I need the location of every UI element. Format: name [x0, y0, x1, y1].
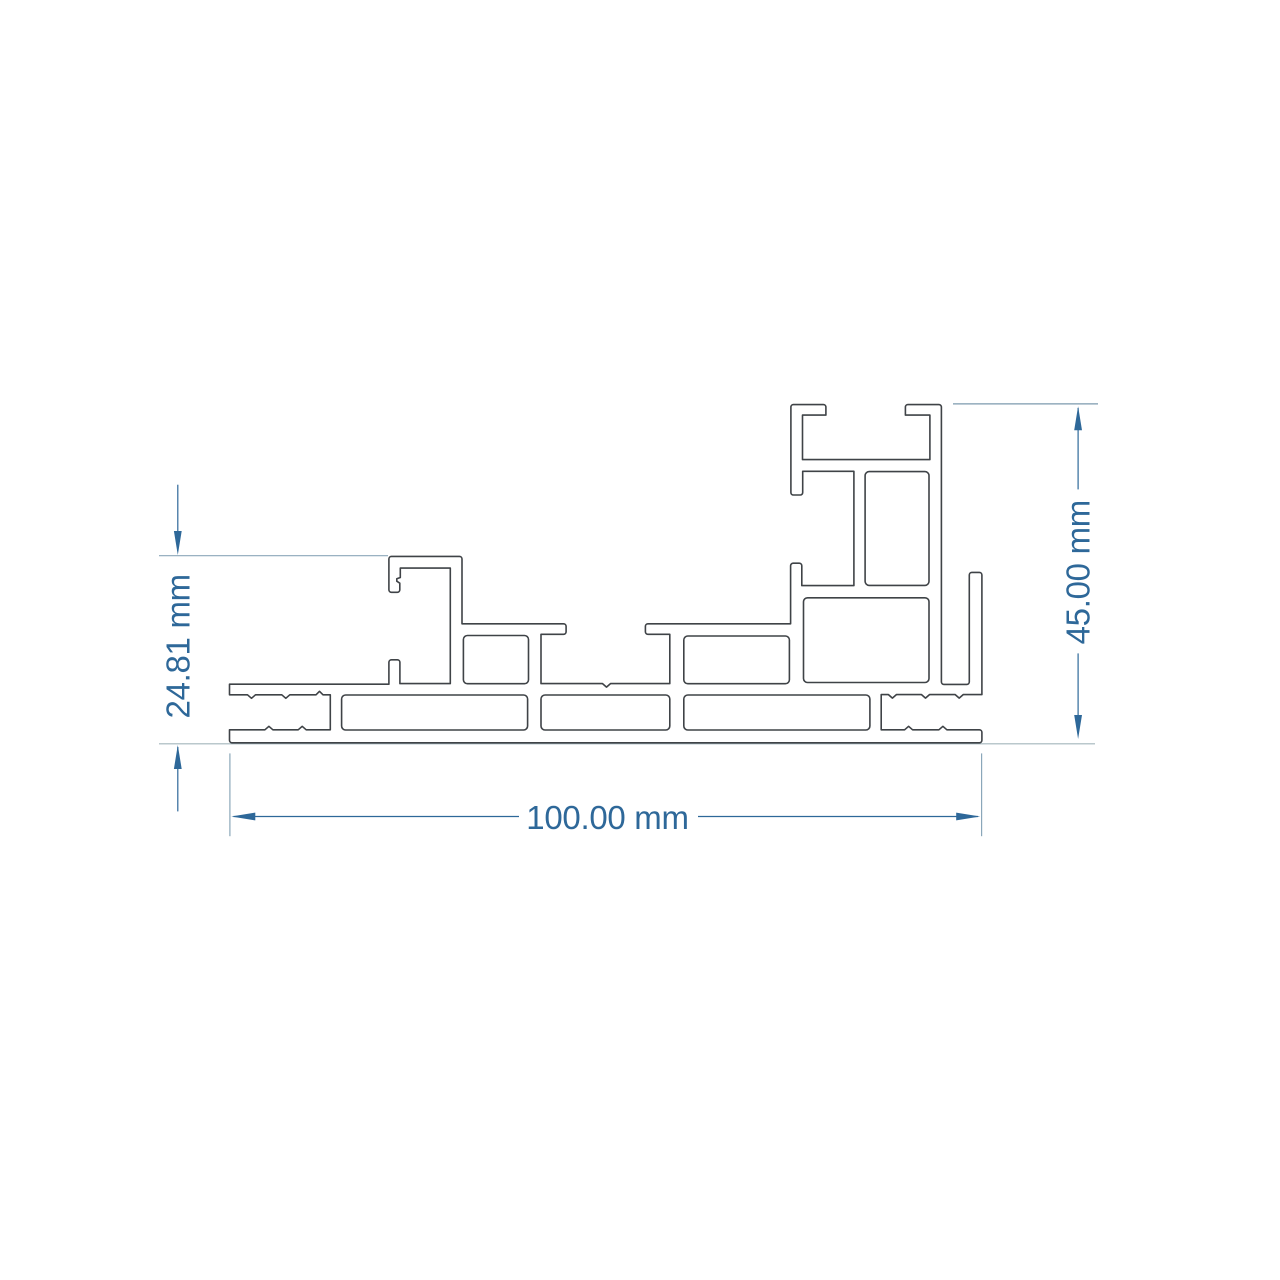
svg-text:45.00 mm: 45.00 mm	[1059, 500, 1096, 644]
svg-text:100.00 mm: 100.00 mm	[526, 799, 688, 836]
svg-text:24.81 mm: 24.81 mm	[159, 574, 196, 718]
